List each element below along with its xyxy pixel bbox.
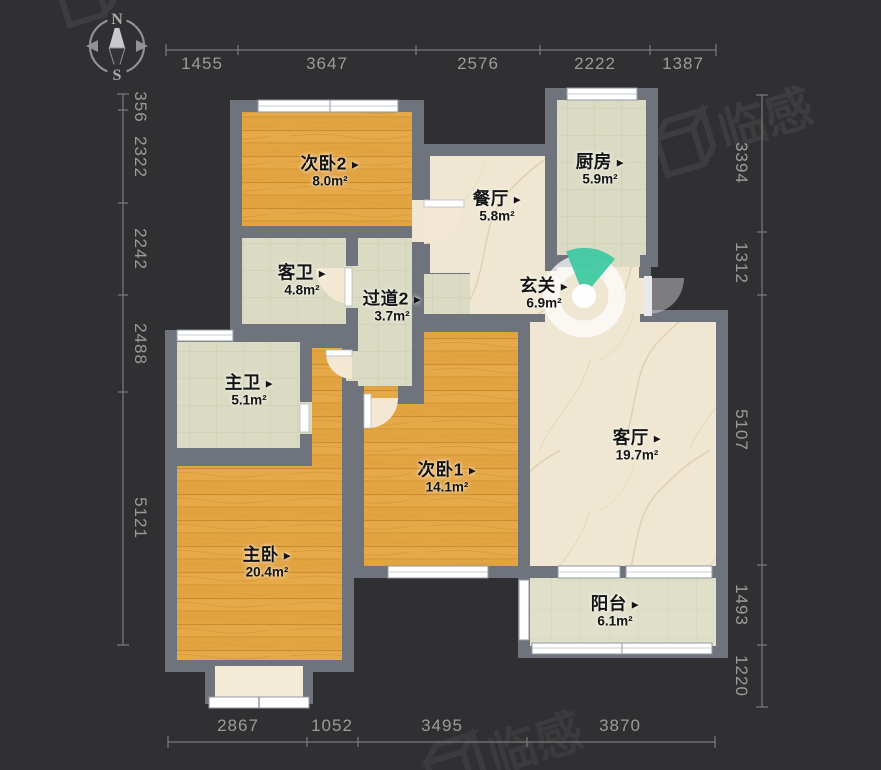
room-area: 5.9m² (576, 173, 624, 188)
window-balcony-left (519, 580, 529, 640)
dim-top-3: 2576 (457, 54, 499, 74)
dim-left-3: 2242 (130, 228, 150, 270)
room-name: 主卫 (225, 372, 261, 392)
dim-bottom-4: 3870 (599, 716, 641, 736)
dim-bottom-3: 3495 (421, 716, 463, 736)
room-area: 14.1m² (418, 481, 477, 496)
room-label-balcony[interactable]: 阳台▶ 6.1m² (591, 594, 639, 629)
room-label-master-bath[interactable]: 主卫▶ 5.1m² (225, 373, 273, 408)
compass-west-arrow-icon (86, 40, 98, 52)
room-name: 客卫 (278, 262, 314, 282)
dim-right-1: 3394 (731, 142, 751, 184)
dim-right-4: 1493 (731, 584, 751, 626)
room-label-bedroom1[interactable]: 次卧1▶ 14.1m² (418, 460, 477, 495)
room-label-kitchen[interactable]: 厨房▶ 5.9m² (576, 152, 624, 187)
dim-top-1: 1455 (181, 54, 223, 74)
bay-window (205, 660, 313, 708)
room-arrow-icon: ▶ (509, 194, 521, 204)
dim-left-4: 2488 (130, 323, 150, 365)
window-bedroom1 (388, 566, 488, 578)
room-name: 阳台 (591, 593, 627, 613)
room-label-dining[interactable]: 餐厅▶ 5.8m² (473, 189, 521, 224)
dim-left-1: 356 (130, 91, 150, 122)
floorplan-screenshot: 临感 临感 临感 (0, 0, 881, 770)
room-name: 餐厅 (473, 188, 509, 208)
room-area: 5.1m² (225, 394, 273, 409)
room-label-living[interactable]: 客厅▶ 19.7m² (613, 428, 661, 463)
room-name: 玄关 (520, 275, 556, 295)
svg-text:临感: 临感 (114, 0, 221, 10)
room-arrow-icon: ▶ (347, 159, 359, 169)
dim-bottom-1: 2867 (217, 716, 259, 736)
room-area: 5.8m² (473, 210, 521, 225)
dim-top-5: 1387 (662, 54, 704, 74)
room-area: 19.7m² (613, 449, 661, 464)
watermark-bottom: 临感 (422, 703, 589, 770)
room-area: 6.9m² (520, 297, 568, 312)
dim-top-4: 2222 (574, 54, 616, 74)
room-name: 客厅 (613, 427, 649, 447)
room-name: 次卧1 (418, 459, 464, 479)
window-bedroom2 (258, 100, 398, 112)
window-kitchen (567, 88, 637, 100)
room-name: 过道2 (363, 288, 409, 308)
room-arrow-icon: ▶ (464, 465, 476, 475)
svg-text:临感: 临感 (712, 81, 819, 160)
watermark-top-left: 临感 (54, 0, 221, 28)
room-arrow-icon: ▶ (556, 281, 568, 291)
dim-bottom-2: 1052 (311, 716, 353, 736)
window-living-balcony-left (558, 566, 620, 578)
room-arrow-icon: ▶ (261, 378, 273, 388)
room-arrow-icon: ▶ (409, 294, 421, 304)
room-area: 6.1m² (591, 615, 639, 630)
room-area: 20.4m² (243, 566, 291, 581)
room-label-foyer[interactable]: 玄关▶ 6.9m² (520, 276, 568, 311)
room-area: 8.0m² (301, 175, 360, 190)
room-arrow-icon: ▶ (279, 550, 291, 560)
dim-left-2: 2322 (130, 136, 150, 178)
room-area: 4.8m² (278, 284, 326, 299)
dim-right-2: 1312 (731, 242, 751, 284)
room-label-guest-bath[interactable]: 客卫▶ 4.8m² (278, 263, 326, 298)
window-living-balcony-right (626, 566, 712, 578)
dim-top-2: 3647 (306, 54, 348, 74)
compass-south-label: S (113, 67, 122, 84)
window-master-bath (177, 330, 233, 341)
dim-right-3: 5107 (731, 409, 751, 451)
dim-right-5: 1220 (731, 655, 751, 697)
room-arrow-icon: ▶ (612, 157, 624, 167)
door-master-bath (300, 404, 309, 432)
vr-camera-dot (572, 284, 596, 308)
room-arrow-icon: ▶ (314, 268, 326, 278)
room-name: 次卧2 (301, 153, 347, 173)
room-label-corridor2[interactable]: 过道2▶ 3.7m² (363, 289, 422, 324)
room-name: 厨房 (576, 151, 612, 171)
room-arrow-icon: ▶ (649, 433, 661, 443)
dim-left-5: 5121 (130, 497, 150, 539)
window-balcony-bottom (532, 643, 712, 654)
room-label-bedroom2[interactable]: 次卧2▶ 8.0m² (301, 154, 360, 189)
room-arrow-icon: ▶ (627, 599, 639, 609)
compass-north-label: N (111, 11, 123, 28)
compass-east-arrow-icon (136, 40, 148, 52)
room-name: 主卧 (243, 544, 279, 564)
room-area: 3.7m² (363, 310, 422, 325)
svg-text:临感: 临感 (482, 705, 589, 770)
room-label-master-bedroom[interactable]: 主卧▶ 20.4m² (243, 545, 291, 580)
